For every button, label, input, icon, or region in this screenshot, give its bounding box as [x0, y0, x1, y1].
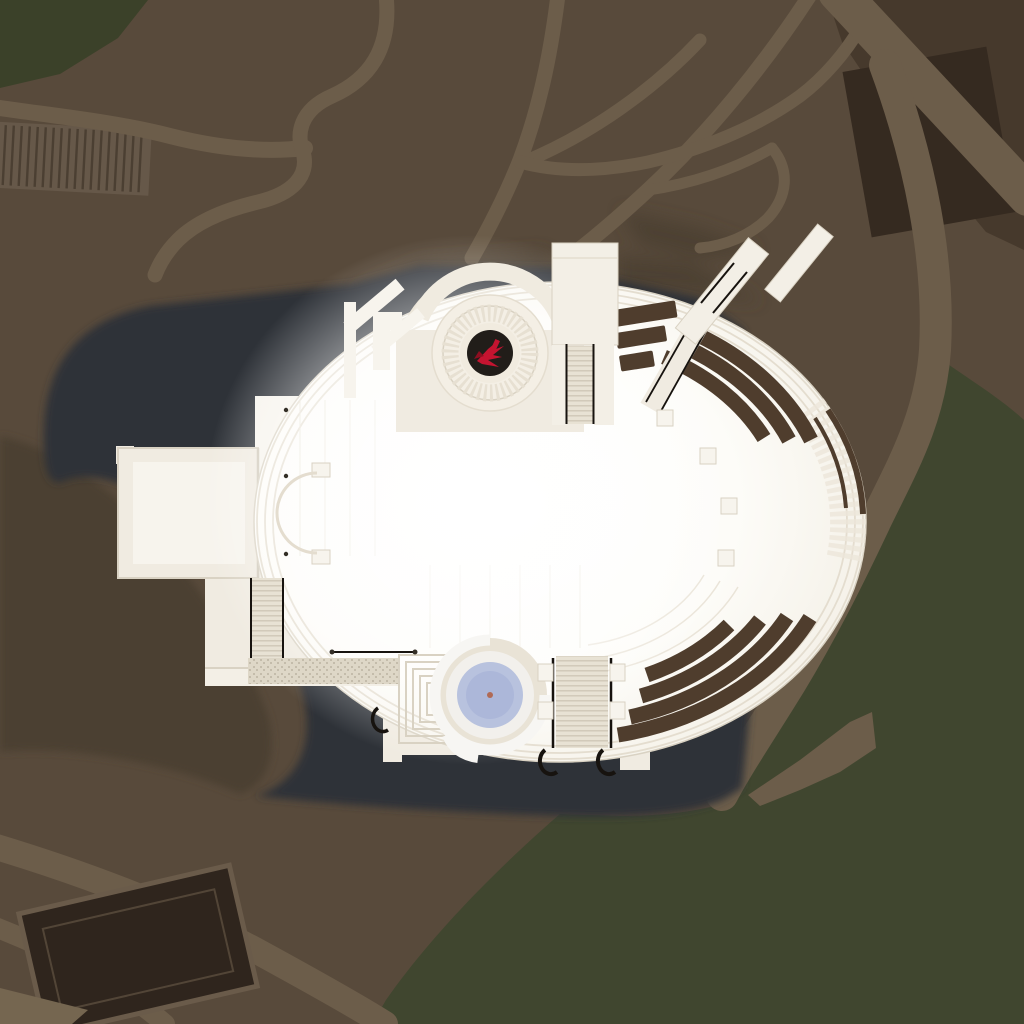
pool-center-dot [487, 692, 493, 698]
west-wall [344, 302, 356, 398]
west-stairs [252, 578, 282, 658]
spiral-pool [433, 638, 547, 758]
grand-stairs [556, 656, 608, 748]
render-viewport[interactable] [0, 0, 1024, 1024]
arc-pad-north [312, 463, 330, 477]
gravel-band [248, 658, 400, 684]
tower-column-west [552, 345, 566, 425]
aerial-render [0, 0, 1024, 1024]
tower-stairs [566, 346, 594, 424]
north-tower [552, 243, 618, 425]
tower-column-east [594, 343, 614, 425]
